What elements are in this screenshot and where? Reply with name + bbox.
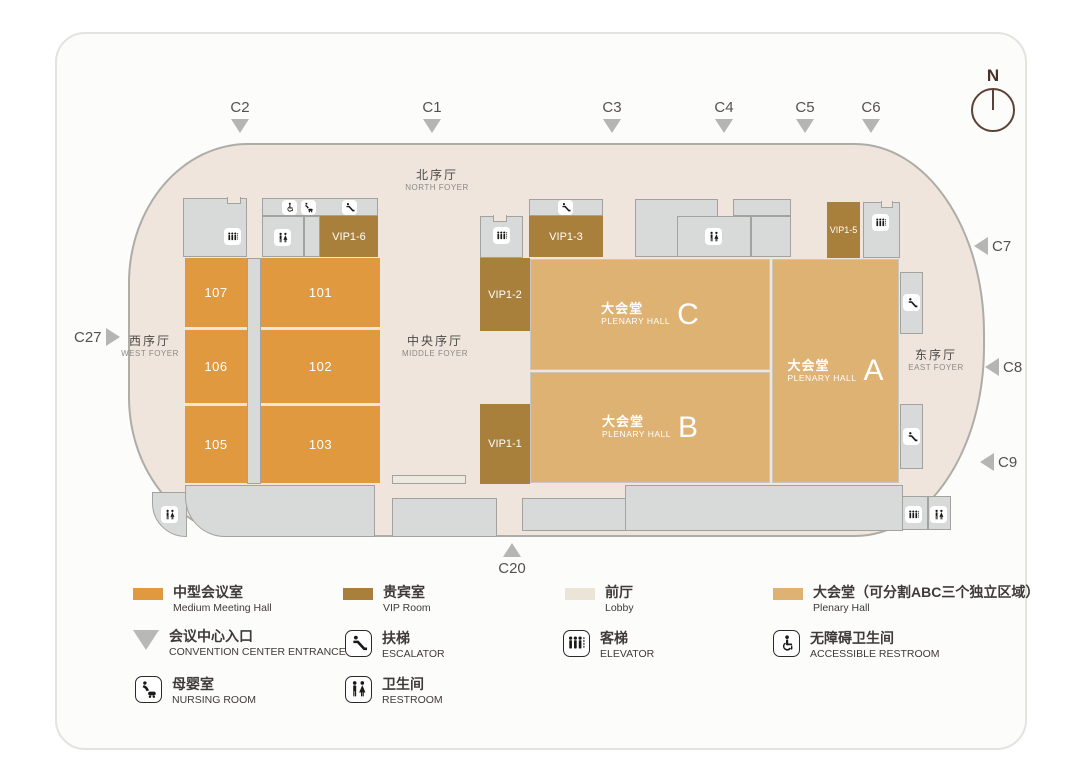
entrance-arrow-icon bbox=[715, 119, 733, 133]
entrance-c4-label: C4 bbox=[714, 99, 733, 116]
escalator-icon bbox=[903, 428, 920, 445]
service-block bbox=[751, 216, 791, 257]
entrance-c1: C1 bbox=[415, 99, 449, 133]
nursing-room-icon bbox=[135, 676, 162, 703]
escalator-icon bbox=[903, 294, 920, 311]
escalator-icon bbox=[345, 630, 372, 657]
entrance-arrow-icon bbox=[862, 119, 880, 133]
corridor-block bbox=[247, 258, 261, 484]
restroom-icon bbox=[274, 229, 291, 246]
middle-foyer-label: 中央序厅 MIDDLE FOYER bbox=[402, 334, 468, 359]
west-foyer-label: 西序厅 WEST FOYER bbox=[121, 334, 179, 359]
legend-vip-room: 贵宾室 VIP Room bbox=[343, 584, 431, 615]
entrance-arrow-icon bbox=[106, 328, 120, 346]
entrance-arrow-icon bbox=[231, 119, 249, 133]
plenary-hall-swatch bbox=[773, 588, 803, 600]
elevator-icon bbox=[493, 227, 510, 244]
escalator-icon bbox=[558, 200, 573, 215]
entrance-arrow-icon bbox=[796, 119, 814, 133]
vip1-2-label: VIP1-2 bbox=[488, 289, 522, 301]
entrance-arrow-icon bbox=[974, 237, 988, 255]
entrance-c7: C7 bbox=[974, 237, 1011, 255]
room-106-label: 106 bbox=[204, 359, 227, 374]
compass-north-label: N bbox=[987, 66, 999, 86]
corridor-block bbox=[625, 485, 903, 531]
room-vip1-6: VIP1-6 bbox=[320, 216, 378, 257]
entrance-c9: C9 bbox=[980, 453, 1017, 471]
vip1-5-label: VIP1-5 bbox=[830, 225, 858, 235]
accessible-restroom-icon bbox=[773, 630, 800, 657]
room-vip1-3: VIP1-3 bbox=[529, 216, 603, 257]
entrance-c2-label: C2 bbox=[230, 99, 249, 116]
room-101-label: 101 bbox=[309, 285, 332, 300]
entrance-c20-label: C20 bbox=[498, 560, 526, 577]
entrance-arrow-icon bbox=[423, 119, 441, 133]
elevator-icon bbox=[905, 506, 922, 523]
restroom-icon bbox=[161, 506, 178, 523]
plenary-hall-c: 大会堂PLENARY HALL C bbox=[530, 259, 770, 370]
meeting-hall-swatch bbox=[133, 588, 163, 600]
service-strip bbox=[262, 198, 378, 216]
room-103: 103 bbox=[261, 406, 380, 483]
entrance-c3: C3 bbox=[595, 99, 629, 133]
vip1-1-label: VIP1-1 bbox=[488, 438, 522, 450]
entrance-c27-label: C27 bbox=[74, 329, 102, 346]
compass-needle bbox=[992, 90, 994, 110]
corridor-block bbox=[392, 498, 497, 537]
entrance-arrow-icon bbox=[980, 453, 994, 471]
room-101: 101 bbox=[261, 258, 380, 327]
entrance-c9-label: C9 bbox=[998, 454, 1017, 471]
service-strip bbox=[733, 199, 791, 216]
room-105: 105 bbox=[185, 406, 247, 483]
plenary-hall-a: 大会堂PLENARY HALL A bbox=[772, 259, 899, 483]
legend-escalator: 扶梯 ESCALATOR bbox=[345, 630, 445, 661]
legend-medium-meeting-hall: 中型会议室 Medium Meeting Hall bbox=[133, 584, 272, 615]
room-106: 106 bbox=[185, 330, 247, 403]
entrance-c20: C20 bbox=[495, 543, 529, 577]
legend-nursing-room: 母婴室 NURSING ROOM bbox=[135, 676, 256, 707]
legend-lobby: 前厅 Lobby bbox=[565, 584, 634, 615]
service-block bbox=[304, 216, 320, 257]
legend-accessible-restroom: 无障碍卫生间 ACCESSIBLE RESTROOM bbox=[773, 630, 940, 661]
accessible-restroom-icon bbox=[282, 200, 297, 215]
nursing-room-icon bbox=[301, 200, 316, 215]
lobby-swatch bbox=[565, 588, 595, 600]
legend-entrance: 会议中心入口 CONVENTION CENTER ENTRANCE bbox=[133, 628, 346, 659]
vip1-6-label: VIP1-6 bbox=[332, 231, 366, 243]
wall-bar bbox=[392, 475, 466, 484]
entrance-arrow-icon bbox=[985, 358, 999, 376]
east-foyer-label: 东序厅 EAST FOYER bbox=[908, 348, 964, 373]
vip-room-swatch bbox=[343, 588, 373, 600]
room-107-label: 107 bbox=[204, 285, 227, 300]
wall-notch bbox=[881, 201, 893, 208]
entrance-c7-label: C7 bbox=[992, 238, 1011, 255]
legend-elevator: 客梯 ELEVATOR bbox=[563, 630, 654, 661]
corridor-block bbox=[185, 485, 375, 537]
legend-plenary-hall: 大会堂（可分割ABC三个独立区域） Plenary Hall bbox=[773, 584, 1039, 615]
floorplan-map: 107 106 105 101 102 103 VIP1-6 VIP1-3 VI… bbox=[0, 0, 1080, 782]
entrance-c5: C5 bbox=[788, 99, 822, 133]
room-107: 107 bbox=[185, 258, 247, 327]
elevator-icon bbox=[224, 228, 241, 245]
entrance-c6: C6 bbox=[854, 99, 888, 133]
room-vip1-2: VIP1-2 bbox=[480, 258, 530, 331]
room-vip1-1: VIP1-1 bbox=[480, 404, 530, 484]
vip1-3-label: VIP1-3 bbox=[549, 231, 583, 243]
entrance-arrow-icon bbox=[603, 119, 621, 133]
plenary-hall-a-label: 大会堂PLENARY HALL A bbox=[787, 356, 883, 386]
north-foyer-label: 北序厅 NORTH FOYER bbox=[405, 168, 469, 193]
plenary-hall-c-label: 大会堂PLENARY HALL C bbox=[601, 300, 699, 330]
room-102: 102 bbox=[261, 330, 380, 403]
room-vip1-5: VIP1-5 bbox=[827, 202, 860, 258]
entrance-c3-label: C3 bbox=[602, 99, 621, 116]
elevator-icon bbox=[872, 214, 889, 231]
corridor-block bbox=[522, 498, 626, 531]
entrance-c6-label: C6 bbox=[861, 99, 880, 116]
restroom-icon bbox=[705, 228, 722, 245]
room-103-label: 103 bbox=[309, 437, 332, 452]
entrance-c8: C8 bbox=[985, 358, 1022, 376]
legend-restroom: 卫生间 RESTROOM bbox=[345, 676, 443, 707]
plenary-hall-b-label: 大会堂PLENARY HALL B bbox=[602, 413, 698, 443]
wall-notch bbox=[227, 197, 241, 204]
entrance-c4: C4 bbox=[707, 99, 741, 133]
entrance-c2: C2 bbox=[223, 99, 257, 133]
entrance-c5-label: C5 bbox=[795, 99, 814, 116]
room-102-label: 102 bbox=[309, 359, 332, 374]
restroom-icon bbox=[930, 506, 947, 523]
plenary-hall-b: 大会堂PLENARY HALL B bbox=[530, 372, 770, 483]
restroom-icon bbox=[345, 676, 372, 703]
entrance-arrow-icon bbox=[133, 630, 159, 650]
entrance-c27: C27 bbox=[74, 328, 120, 346]
compass-icon bbox=[971, 88, 1015, 132]
entrance-arrow-icon bbox=[503, 543, 521, 557]
entrance-c1-label: C1 bbox=[422, 99, 441, 116]
escalator-icon bbox=[342, 200, 357, 215]
wall-notch bbox=[493, 215, 507, 222]
entrance-c8-label: C8 bbox=[1003, 359, 1022, 376]
room-105-label: 105 bbox=[204, 437, 227, 452]
elevator-icon bbox=[563, 630, 590, 657]
